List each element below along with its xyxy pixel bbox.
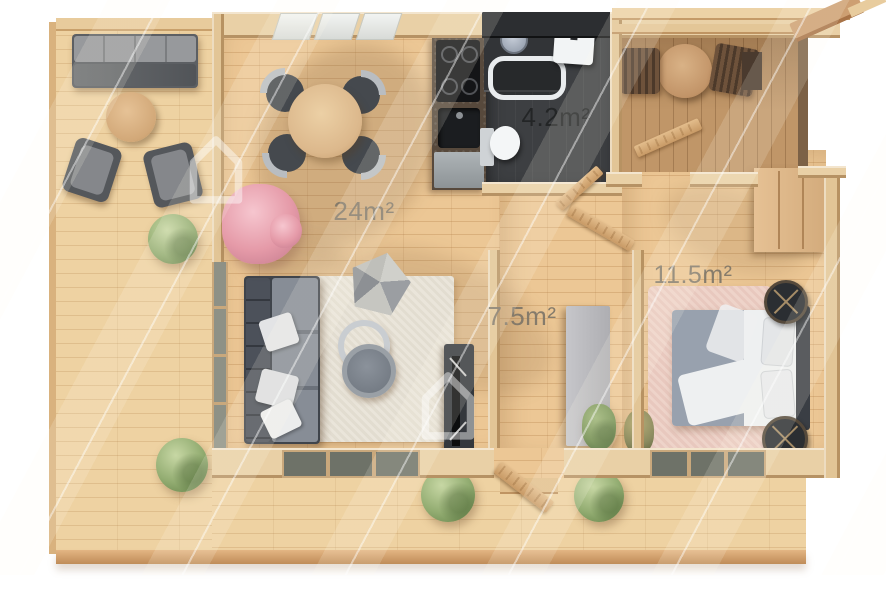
bistro-table	[658, 44, 712, 98]
nesting-table-solid	[342, 344, 396, 398]
window-mullion	[724, 452, 728, 476]
left-window-wall	[212, 262, 228, 448]
outdoor-sofa	[72, 34, 198, 88]
outdoor-sofa-seat	[74, 64, 196, 86]
window-mullion	[687, 452, 691, 476]
bathroom-bottom-wall	[482, 182, 622, 196]
corner-sofa	[244, 276, 320, 444]
window-mullion	[214, 402, 226, 405]
bedroom-area-label: 11.5m²	[638, 261, 748, 290]
bathroom-top-wall	[482, 12, 610, 38]
dining-table	[288, 84, 362, 158]
deck-bush	[156, 438, 208, 492]
bathroom-area-label: 4.2m²	[508, 102, 604, 133]
burner	[441, 46, 458, 63]
corridor-wall-left	[606, 172, 642, 187]
outdoor-sofa-back-cushions	[74, 36, 196, 62]
kitchen-base-cabinet	[434, 152, 484, 188]
shower-tray	[488, 56, 566, 100]
right-wall	[824, 172, 840, 478]
double-bed	[672, 310, 798, 426]
wardrobe-door-line	[802, 171, 804, 249]
burner	[461, 78, 478, 95]
deck-bush	[148, 214, 198, 264]
living-window	[282, 450, 420, 478]
lounge-chair-cushion	[69, 144, 115, 196]
left-deck-edge	[49, 22, 56, 554]
left-deck-top-beam	[56, 18, 212, 31]
living-hallway-wall	[488, 250, 500, 448]
hall-plant	[582, 404, 616, 450]
pergola-beam	[612, 24, 814, 34]
window-mullion	[214, 354, 226, 357]
bathroom-right-wall	[610, 14, 622, 184]
terrace-corner-beam	[798, 166, 846, 178]
wardrobe	[754, 168, 826, 252]
wardrobe-door-line	[778, 171, 780, 249]
bed-pillow	[760, 317, 795, 367]
burner	[441, 78, 458, 95]
cooktop	[436, 40, 480, 102]
faucet	[456, 112, 463, 119]
corridor-wall-right	[690, 172, 758, 187]
bed-pillow	[760, 369, 796, 420]
window-mullion	[214, 306, 226, 309]
window-mullion	[326, 452, 330, 476]
bed-headboard	[796, 306, 810, 430]
hallway-area-label: 7.5m²	[474, 301, 570, 332]
window-mullion	[372, 452, 376, 476]
terrace-chair	[620, 48, 660, 94]
tv-console	[444, 344, 474, 458]
kitchen-counter	[432, 36, 486, 190]
deck-fascia	[56, 550, 806, 564]
bedroom-window	[650, 450, 766, 478]
outdoor-coffee-table	[106, 92, 156, 142]
burner	[461, 46, 478, 63]
living-dining-area-label: 24m²	[316, 196, 412, 227]
kitchen-sink	[438, 108, 480, 148]
floor-plan: 24m² 4.2m² 7.5m² 11.5m²	[0, 0, 886, 590]
watermark-house-logo	[0, 316, 38, 401]
lounge-chair-cushion	[150, 148, 196, 201]
nightstand	[764, 280, 808, 324]
terrace-wall-decor	[742, 52, 762, 90]
